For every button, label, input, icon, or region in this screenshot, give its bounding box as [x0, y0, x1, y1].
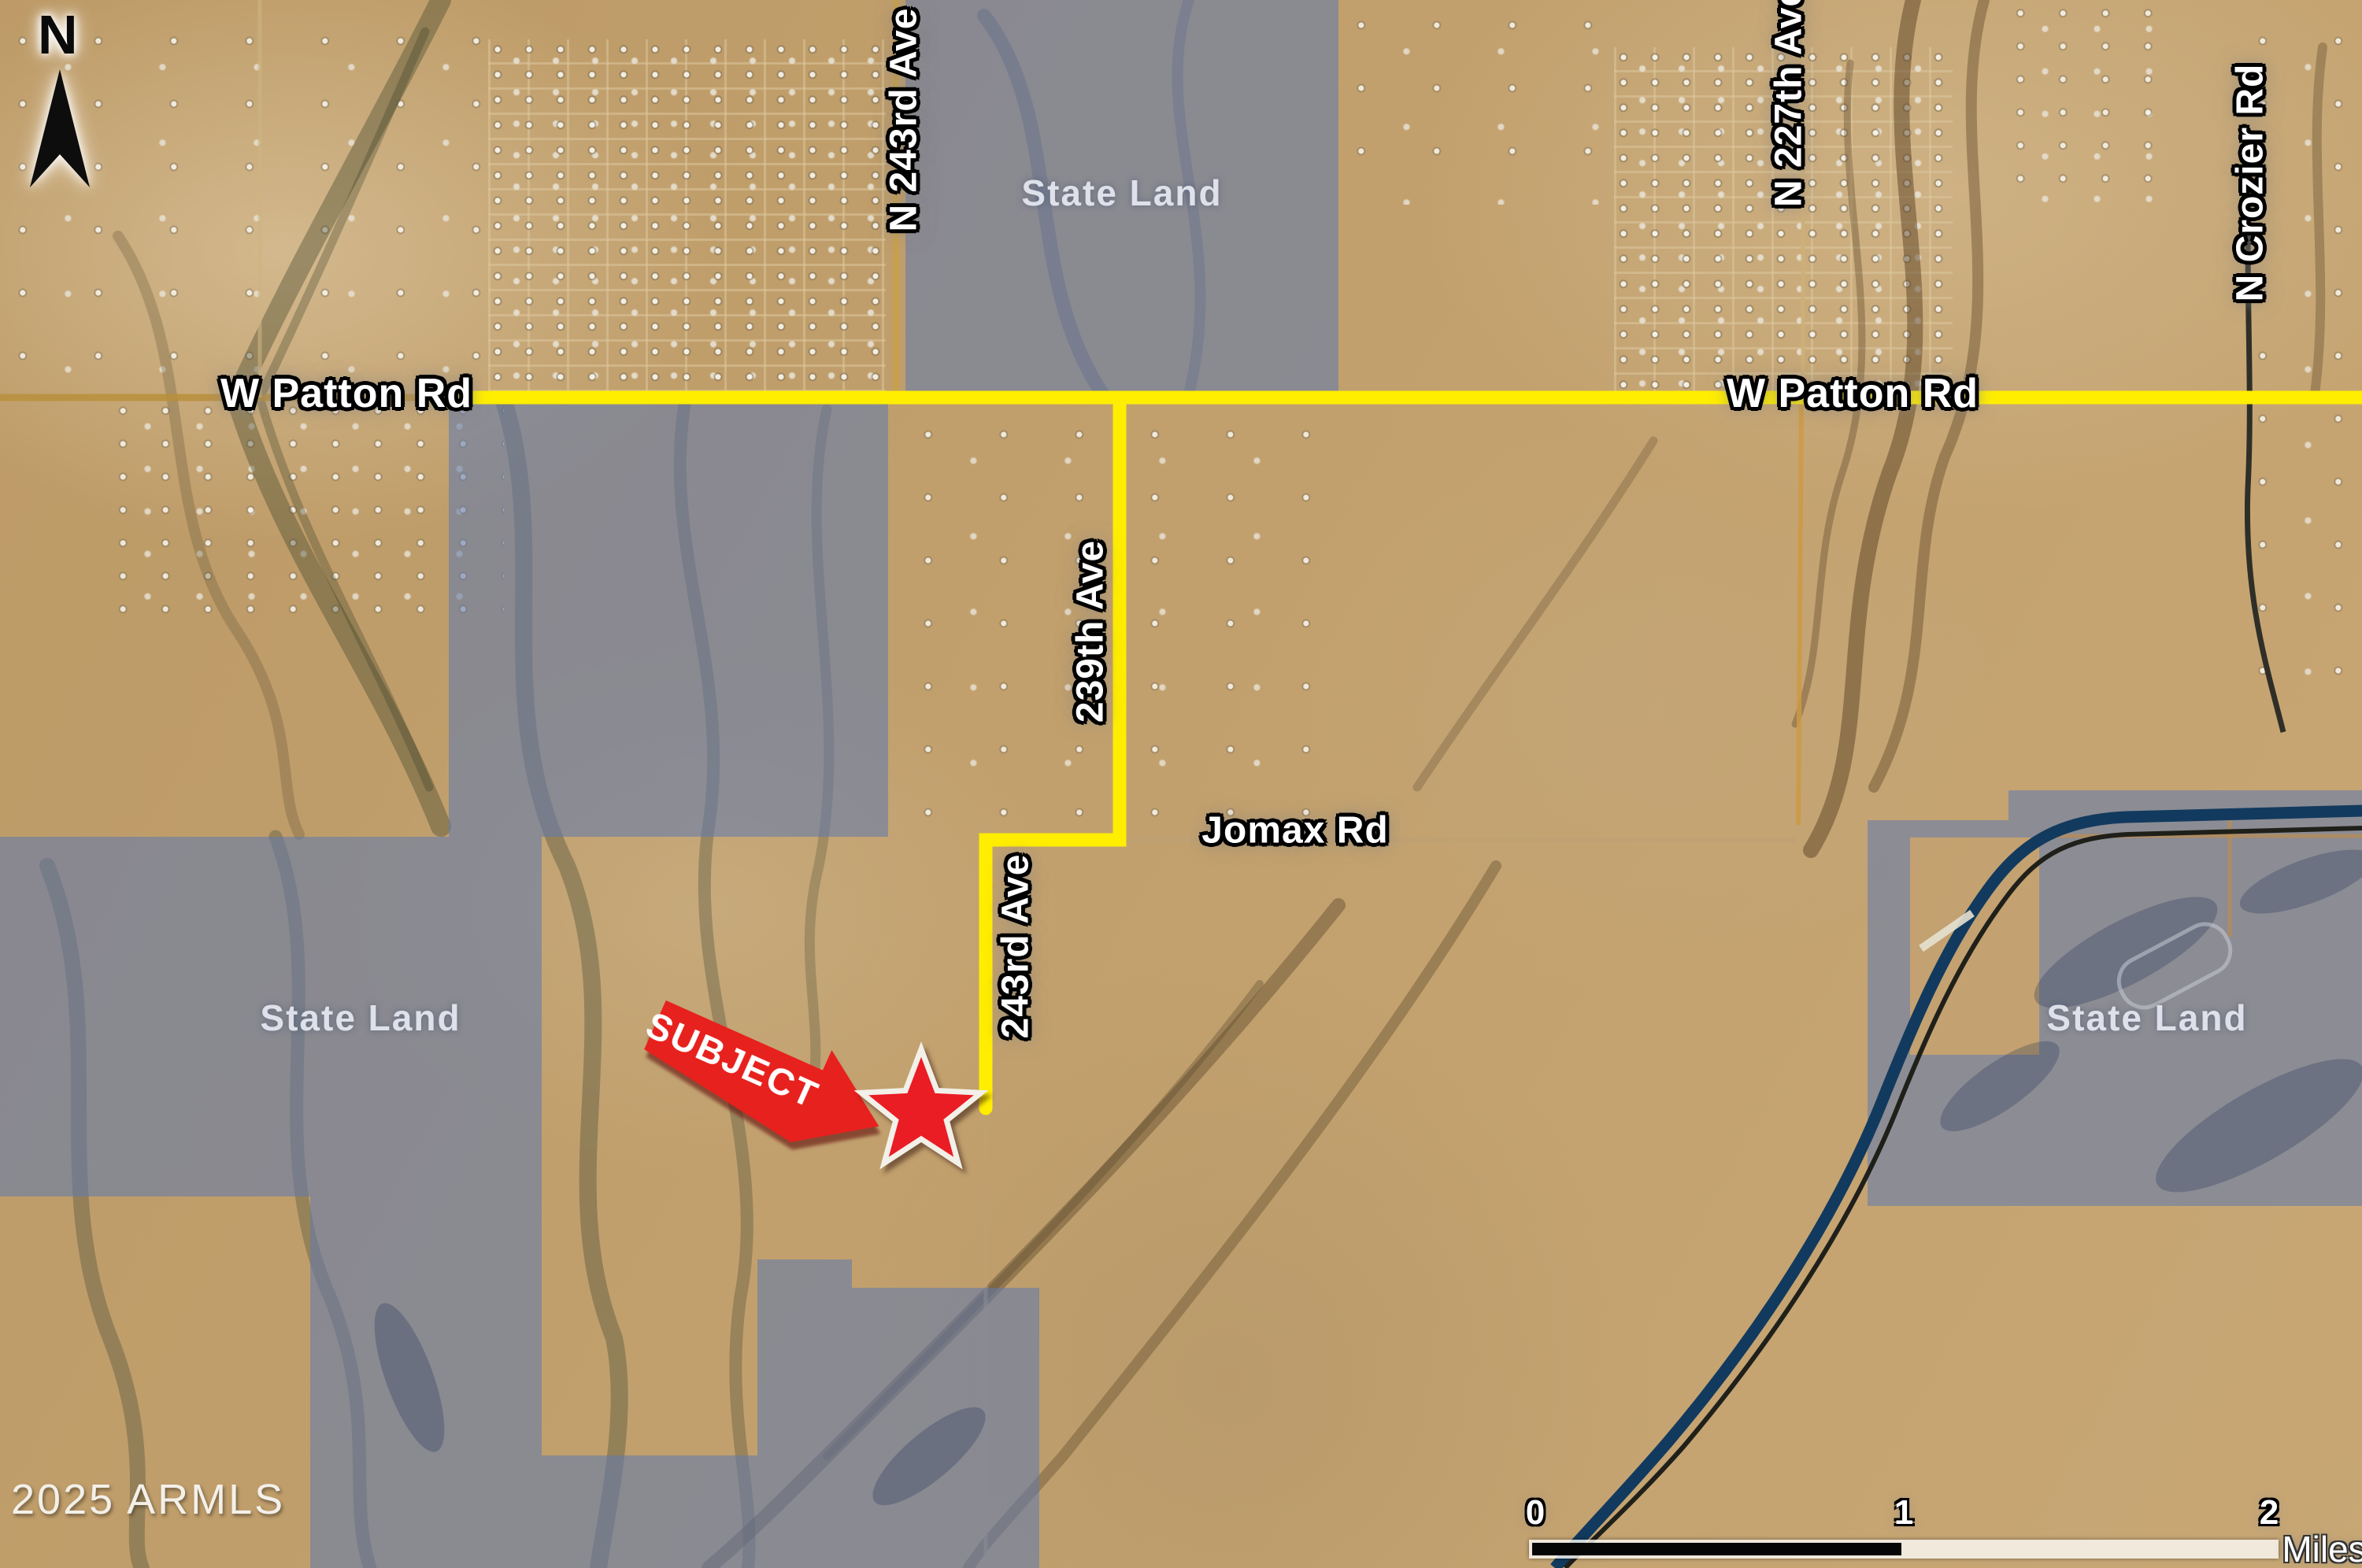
- scale-tick-1: 1: [1894, 1493, 1913, 1533]
- road-label-243rd-ave-mid: 243rd Ave: [994, 854, 1038, 1039]
- scale-bar-black-segment: [1532, 1543, 1901, 1555]
- attribution-watermark: 2025 ARMLS: [11, 1475, 285, 1524]
- state-land-dark-mottle: [361, 837, 2362, 1520]
- state-land-label-left: State Land: [260, 997, 461, 1039]
- road-label-jomax-rd: Jomax Rd: [1201, 809, 1388, 852]
- road-label-243rd-ave-north: N 243rd Ave: [883, 8, 926, 232]
- road-label-227th-ave: N 227th Ave: [1768, 0, 1811, 207]
- compass-north-label: N: [38, 3, 78, 66]
- highway-road: [1565, 828, 2362, 1568]
- road-label-239th-ave: 239th Ave: [1069, 540, 1113, 723]
- state-land-label-right: State Land: [2046, 997, 2247, 1039]
- satellite-map-canvas[interactable]: SUBJECT N W Patton Rd W Patton Rd N 243r…: [0, 0, 2362, 1568]
- state-land-label-top: State Land: [1021, 172, 1222, 214]
- north-arrow-icon: [30, 69, 90, 187]
- road-label-patton-east: W Patton Rd: [1727, 370, 1979, 417]
- map-features-layer: SUBJECT: [0, 0, 2362, 1568]
- scale-bar: [1529, 1540, 2279, 1559]
- subject-star-icon: [861, 1049, 981, 1163]
- road-label-crozier-rd: N Crozier Rd: [2229, 64, 2272, 302]
- scale-unit-label: Miles: [2282, 1528, 2362, 1568]
- scale-tick-2: 2: [2260, 1493, 2279, 1533]
- subject-arrow: SUBJECT: [628, 978, 899, 1172]
- scale-tick-0: 0: [1526, 1493, 1545, 1533]
- road-label-patton-west: W Patton Rd: [220, 370, 472, 417]
